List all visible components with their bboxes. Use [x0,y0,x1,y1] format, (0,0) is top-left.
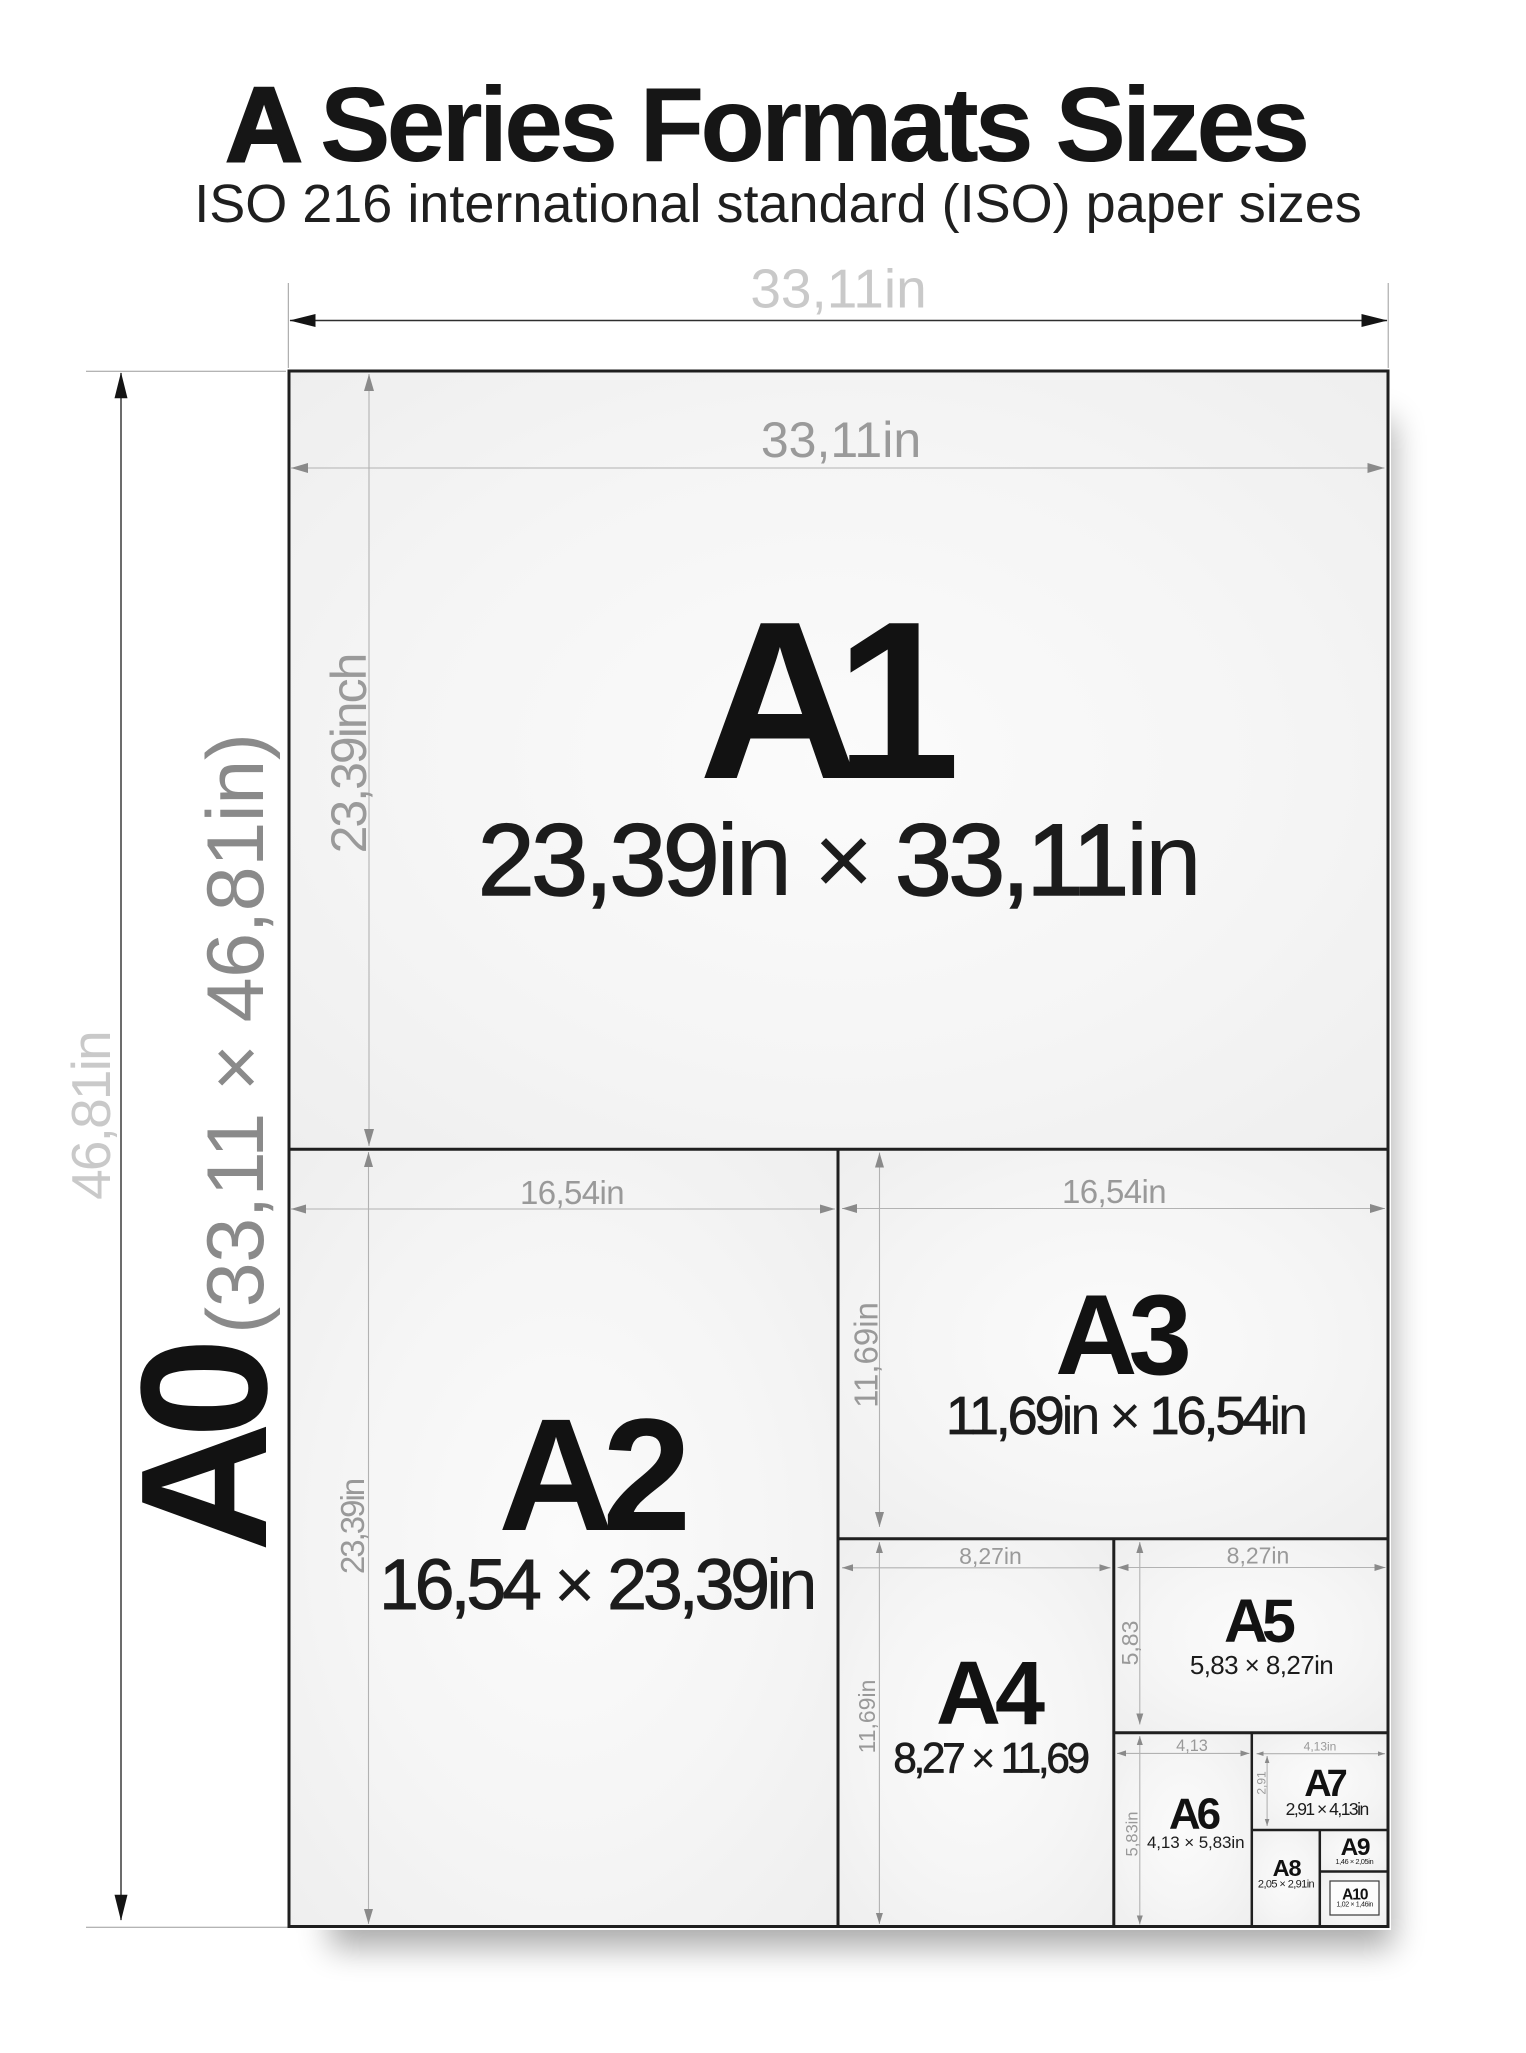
svg-text:5,83in: 5,83in [1124,1812,1142,1857]
svg-text:A3: A3 [1055,1272,1188,1399]
svg-text:16,54in: 16,54in [520,1174,624,1211]
svg-text:5,83: 5,83 [1117,1621,1143,1666]
svg-text:8,27in: 8,27in [959,1543,1022,1569]
svg-text:33,11in: 33,11in [750,258,926,320]
svg-text:A Series Formats Sizes: A Series Formats Sizes [226,66,1307,184]
svg-text:1,02 × 1,46in: 1,02 × 1,46in [1336,1900,1373,1909]
svg-text:2,91 × 4,13in: 2,91 × 4,13in [1286,1799,1369,1819]
svg-text:A2: A2 [498,1385,685,1564]
svg-text:8,27 × 11,69: 8,27 × 11,69 [893,1736,1088,1783]
svg-text:46,81in: 46,81in [60,1032,122,1200]
svg-text:A8: A8 [1273,1855,1302,1881]
svg-text:23,39in × 33,11in: 23,39in × 33,11in [478,802,1199,917]
svg-text:4,13in: 4,13in [1304,1740,1337,1754]
svg-text:23,39inch: 23,39inch [321,655,377,854]
svg-text:A1: A1 [699,574,954,826]
svg-text:11,69in: 11,69in [854,1680,880,1754]
svg-text:1,46 × 2,05in: 1,46 × 2,05in [1335,1857,1373,1866]
svg-text:33,11in: 33,11in [761,412,921,468]
svg-text:ISO 216 international standard: ISO 216 international standard (ISO) pap… [194,174,1362,234]
svg-text:A6: A6 [1169,1790,1220,1839]
svg-text:23,39in: 23,39in [334,1479,371,1574]
svg-text:16,54 × 23,39in: 16,54 × 23,39in [379,1546,814,1625]
svg-text:2,05 × 2,91in: 2,05 × 2,91in [1258,1879,1315,1891]
svg-text:16,54in: 16,54in [1062,1173,1166,1210]
svg-text:11,69in × 16,54in: 11,69in × 16,54in [946,1386,1305,1446]
svg-text:4,13 × 5,83in: 4,13 × 5,83in [1147,1833,1245,1852]
svg-text:A5: A5 [1224,1587,1295,1655]
svg-text:2,91: 2,91 [1255,1771,1269,1795]
svg-text:11,69in: 11,69in [848,1302,885,1408]
svg-text:8,27in: 8,27in [1227,1543,1290,1569]
svg-text:4,13: 4,13 [1176,1737,1208,1755]
svg-text:5,83 × 8,27in: 5,83 × 8,27in [1190,1650,1333,1680]
svg-text:A4: A4 [936,1644,1045,1744]
